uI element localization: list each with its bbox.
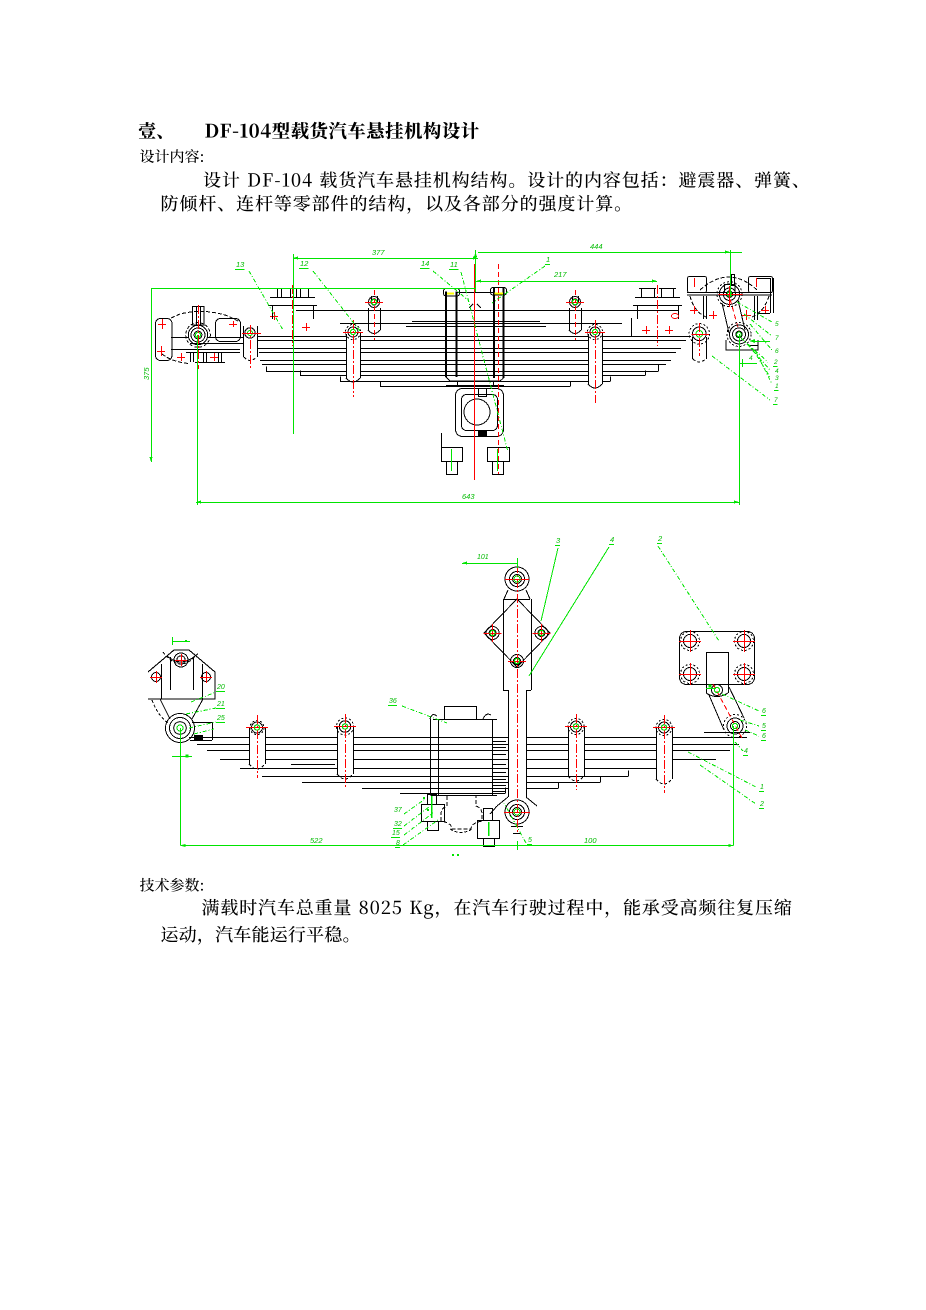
svg-text:4: 4	[744, 748, 748, 755]
svg-text:6: 6	[762, 733, 766, 740]
svg-text:377: 377	[372, 248, 385, 257]
svg-text:7: 7	[774, 397, 778, 404]
svg-text:6: 6	[762, 708, 766, 715]
svg-text:21: 21	[216, 701, 225, 708]
svg-text:37: 37	[394, 807, 403, 814]
svg-text:1: 1	[760, 784, 764, 791]
svg-text:13: 13	[236, 260, 245, 269]
svg-text:15: 15	[392, 830, 400, 837]
svg-text:5: 5	[762, 723, 766, 730]
svg-text:444: 444	[590, 242, 603, 251]
svg-text:6: 6	[775, 348, 779, 355]
svg-text:217: 217	[553, 270, 567, 279]
svg-text:8: 8	[396, 840, 400, 847]
svg-text:375: 375	[142, 367, 151, 380]
svg-text:36: 36	[389, 698, 397, 705]
svg-text:643: 643	[462, 492, 475, 501]
svg-text:5: 5	[528, 837, 532, 844]
svg-text:3: 3	[775, 375, 779, 382]
svg-text:101: 101	[477, 554, 489, 561]
svg-text:7: 7	[775, 335, 779, 342]
svg-text:4: 4	[610, 535, 614, 544]
svg-text:1: 1	[546, 255, 550, 264]
svg-text:12: 12	[300, 259, 309, 268]
svg-text:1: 1	[775, 383, 779, 390]
svg-text:4: 4	[775, 368, 779, 375]
svg-text:2: 2	[759, 801, 764, 808]
svg-text:32: 32	[394, 821, 402, 828]
svg-text:20: 20	[216, 684, 225, 691]
svg-text:100: 100	[584, 836, 597, 845]
svg-text:2: 2	[657, 534, 663, 543]
svg-text:5: 5	[775, 321, 779, 328]
svg-text:11: 11	[450, 260, 458, 269]
svg-text:4: 4	[749, 355, 753, 362]
svg-text:522: 522	[310, 836, 323, 845]
svg-text:14: 14	[421, 259, 429, 268]
svg-text:2: 2	[773, 359, 778, 366]
svg-text:3: 3	[556, 536, 561, 545]
svg-text:25: 25	[216, 715, 225, 722]
